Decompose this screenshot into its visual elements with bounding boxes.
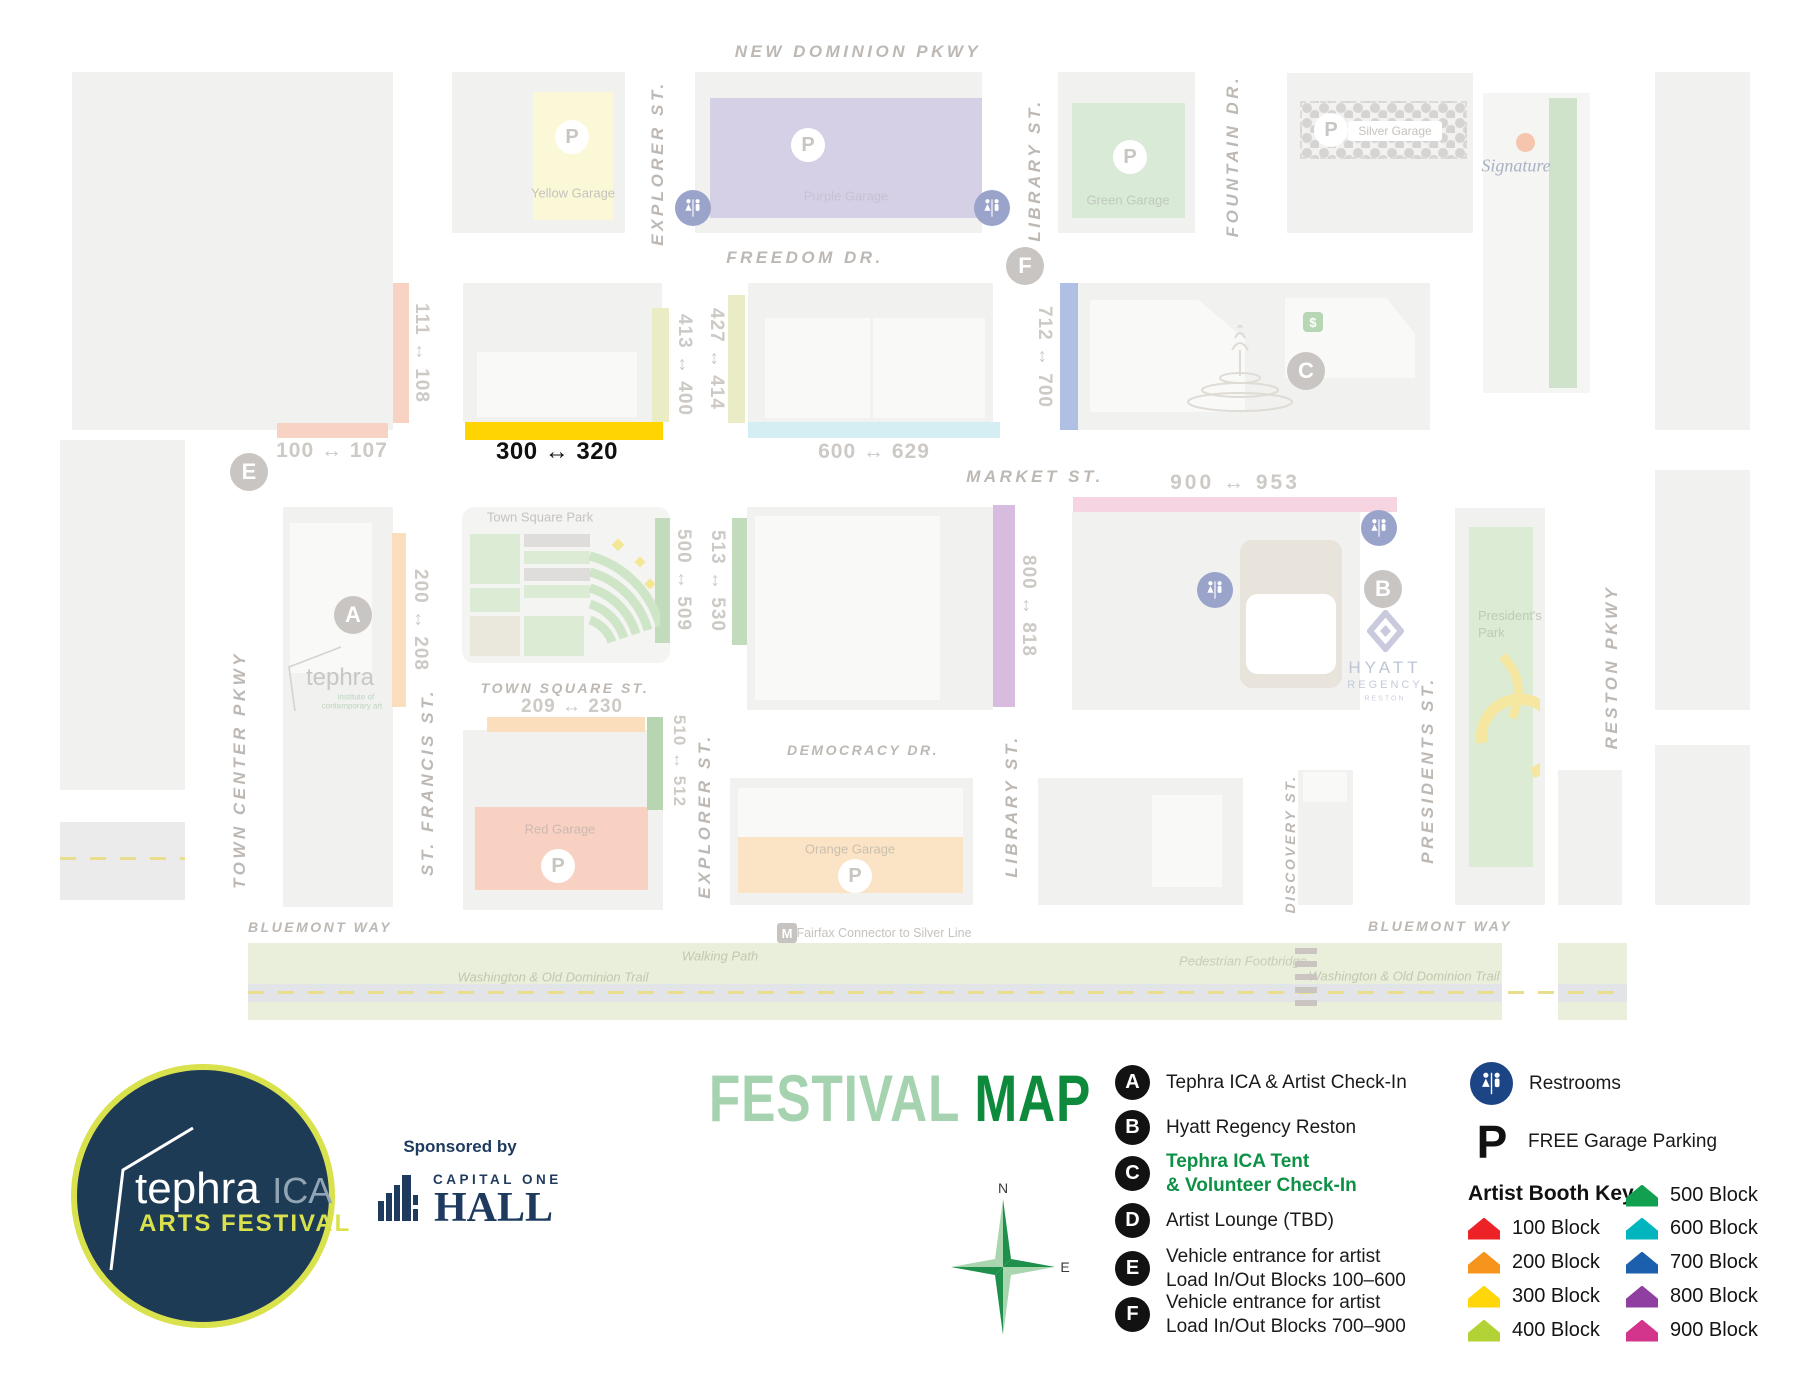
sponsored-by-label: Sponsored by bbox=[403, 1137, 516, 1157]
booth-key-600: 600 Block bbox=[1626, 1217, 1758, 1240]
city-block bbox=[72, 72, 393, 430]
metro-icon: M bbox=[777, 923, 797, 943]
booth-key-500-label: 500 Block bbox=[1670, 1184, 1758, 1207]
legend-marker-d: D bbox=[1115, 1203, 1150, 1238]
street-label-town-center-pkwy: TOWN CENTER PKWY bbox=[230, 651, 250, 889]
building bbox=[477, 352, 637, 417]
wod-trail-label-east: Washington & Old Dominion Trail bbox=[1309, 969, 1500, 984]
hyatt-diamond-icon bbox=[1367, 610, 1404, 652]
signature-label: Signature bbox=[1481, 156, 1550, 177]
building bbox=[1303, 772, 1347, 802]
parking-legend-icon: P bbox=[1472, 1115, 1512, 1169]
fountain-illustration bbox=[1185, 320, 1295, 415]
trail-road-dashes bbox=[248, 991, 1627, 994]
signature-logo-dot bbox=[1516, 133, 1535, 152]
street-label-market-st: MARKET ST. bbox=[966, 467, 1104, 487]
block-label-427-414: 427 ↔ 414 bbox=[705, 308, 727, 410]
booth-bar-800-818 bbox=[993, 505, 1015, 707]
booth-key-300-label: 300 Block bbox=[1512, 1285, 1600, 1308]
title-map: MAP bbox=[974, 1061, 1091, 1135]
yellow-garage-label: Yellow Garage bbox=[531, 186, 615, 201]
building bbox=[1152, 795, 1222, 887]
booth-bar-427-414 bbox=[728, 295, 745, 423]
signature-green-strip bbox=[1549, 98, 1577, 388]
legend-item-c: C Tephra ICA Tent & Volunteer Check-In bbox=[1115, 1150, 1357, 1198]
presidents-park-label-1: President's bbox=[1478, 608, 1542, 623]
logo-ica-text: ICA bbox=[272, 1170, 332, 1211]
legend-restrooms: Restrooms bbox=[1470, 1062, 1621, 1105]
booth-key-100-label: 100 Block bbox=[1512, 1217, 1600, 1240]
logo-tephra-text: tephra bbox=[135, 1164, 260, 1213]
booth-bar-513-530 bbox=[732, 518, 747, 645]
hyatt-reston-label: RESTON bbox=[1364, 696, 1405, 703]
booth-key-400: 400 Block bbox=[1468, 1319, 1600, 1342]
building bbox=[755, 516, 940, 700]
parking-icon-green-garage: P bbox=[1113, 140, 1147, 174]
tent-icon-800 bbox=[1626, 1286, 1658, 1308]
block-label-500-509: 500 ↔ 509 bbox=[672, 529, 694, 631]
block-label-600-629: 600 ↔ 629 bbox=[818, 440, 930, 464]
city-block bbox=[1655, 72, 1750, 430]
block-label-712-700: 712 ↔ 700 bbox=[1033, 306, 1055, 408]
pedestrian-footbridge-label: Pedestrian Footbridge bbox=[1179, 954, 1307, 969]
legend-item-f: F Vehicle entrance for artist Load In/Ou… bbox=[1115, 1291, 1406, 1339]
legend-item-b-text: Hyatt Regency Reston bbox=[1166, 1116, 1356, 1140]
city-block bbox=[1558, 770, 1622, 905]
block-label-200-208: 200 ↔ 208 bbox=[409, 569, 431, 671]
block-label-800-818: 800 ↔ 818 bbox=[1017, 555, 1039, 657]
street-label-library-st-north: LIBRARY ST. bbox=[1025, 98, 1045, 241]
restroom-icon bbox=[1197, 572, 1233, 608]
tent-icon-500 bbox=[1626, 1185, 1658, 1207]
booth-bar-510-512 bbox=[647, 717, 663, 810]
legend-marker-a: A bbox=[1115, 1065, 1150, 1100]
marker-f: F bbox=[1006, 247, 1044, 285]
street-label-discovery-st: DISCOVERY ST. bbox=[1282, 774, 1298, 913]
parking-icon-silver-garage: P bbox=[1314, 113, 1348, 147]
city-block bbox=[1655, 470, 1750, 710]
legend-marker-f: F bbox=[1115, 1297, 1150, 1332]
booth-key-800: 800 Block bbox=[1626, 1285, 1758, 1308]
building bbox=[765, 318, 870, 418]
purple-garage-label: Purple Garage bbox=[804, 189, 889, 204]
road-stub-west bbox=[60, 822, 185, 900]
marker-a: A bbox=[334, 596, 372, 634]
legend-marker-b: B bbox=[1115, 1110, 1150, 1145]
block-label-413-400: 413 ↔ 400 bbox=[673, 314, 695, 416]
legend-item-b: B Hyatt Regency Reston bbox=[1115, 1110, 1356, 1145]
legend-marker-c: C bbox=[1115, 1156, 1150, 1191]
yellow-garage bbox=[533, 92, 613, 220]
block-label-100-107: 100 ↔ 107 bbox=[276, 439, 388, 463]
city-block bbox=[60, 440, 185, 790]
marker-b: B bbox=[1364, 570, 1402, 608]
legend-item-c-text-1: Tephra ICA Tent bbox=[1166, 1150, 1357, 1174]
hyatt-regency-label: REGENCY bbox=[1347, 679, 1422, 691]
legend-item-e: E Vehicle entrance for artist Load In/Ou… bbox=[1115, 1245, 1406, 1293]
tent-icon-700 bbox=[1626, 1252, 1658, 1274]
booth-bar-712-700 bbox=[1060, 283, 1078, 430]
hyatt-courtyard bbox=[1246, 594, 1336, 674]
silver-garage-label: Silver Garage bbox=[1358, 124, 1431, 138]
booth-bar-100-107 bbox=[277, 423, 388, 438]
legend-item-e-text-2: Load In/Out Blocks 100–600 bbox=[1166, 1269, 1406, 1293]
legend-marker-e: E bbox=[1115, 1251, 1150, 1286]
booth-bar-209-230 bbox=[487, 717, 645, 732]
booth-key-300: 300 Block bbox=[1468, 1285, 1600, 1308]
presidents-park-sculpture bbox=[1468, 648, 1540, 793]
fairfax-connector-label: Fairfax Connector to Silver Line bbox=[796, 926, 971, 940]
street-label-new-dominion-pkwy: NEW DOMINION PKWY bbox=[735, 42, 982, 62]
booth-key-900: 900 Block bbox=[1626, 1319, 1758, 1342]
presidents-park-label-2: Park bbox=[1478, 625, 1505, 640]
tent-icon-300 bbox=[1468, 1286, 1500, 1308]
hall-label: HALL bbox=[434, 1184, 553, 1232]
festival-map-title: FESTIVAL MAP bbox=[655, 1060, 1145, 1136]
tent-icon-200 bbox=[1468, 1252, 1500, 1274]
booth-key-700-label: 700 Block bbox=[1670, 1251, 1758, 1274]
booth-key-600-label: 600 Block bbox=[1670, 1217, 1758, 1240]
building bbox=[873, 318, 985, 418]
legend-item-e-text-1: Vehicle entrance for artist bbox=[1166, 1245, 1406, 1269]
tephra-logo-lineart bbox=[285, 643, 347, 713]
dollar-icon: $ bbox=[1303, 312, 1323, 332]
restrooms-label: Restrooms bbox=[1529, 1072, 1621, 1096]
block-label-900-953: 900 ↔ 953 bbox=[1170, 471, 1300, 495]
street-label-freedom-dr: FREEDOM DR. bbox=[726, 248, 884, 268]
walking-path-label: Walking Path bbox=[682, 949, 758, 964]
road-dash-west bbox=[60, 857, 185, 860]
street-label-fountain-dr: FOUNTAIN DR. bbox=[1223, 75, 1243, 238]
parking-label: FREE Garage Parking bbox=[1528, 1130, 1717, 1154]
street-label-explorer-st-south: EXPLORER ST. bbox=[695, 733, 715, 898]
parking-icon-purple-garage: P bbox=[791, 128, 825, 162]
parking-icon-red-garage: P bbox=[541, 849, 575, 883]
street-label-st-francis-st: ST. FRANCIS ST. bbox=[418, 688, 438, 876]
booth-bar-600-629 bbox=[748, 422, 1000, 438]
booth-key-400-label: 400 Block bbox=[1512, 1319, 1600, 1342]
compass-rose: N E bbox=[933, 1182, 1073, 1352]
block-label-300-320-highlighted: 300 ↔ 320 bbox=[496, 438, 618, 466]
legend-item-f-text-1: Vehicle entrance for artist bbox=[1166, 1291, 1406, 1315]
capital-one-hall-logo-icon bbox=[378, 1173, 424, 1221]
legend-item-a: A Tephra ICA & Artist Check-In bbox=[1115, 1065, 1407, 1100]
booth-key-200-label: 200 Block bbox=[1512, 1251, 1600, 1274]
marker-c: C bbox=[1287, 352, 1325, 390]
block-label-111-108: 111 ↔ 108 bbox=[410, 303, 432, 403]
legend-item-f-text-2: Load In/Out Blocks 700–900 bbox=[1166, 1315, 1406, 1339]
building bbox=[738, 788, 963, 837]
tent-icon-600 bbox=[1626, 1218, 1658, 1240]
booth-key-title: Artist Booth Key bbox=[1468, 1182, 1634, 1206]
street-label-explorer-st-north: EXPLORER ST. bbox=[648, 80, 668, 245]
orange-garage-label: Orange Garage bbox=[805, 842, 895, 857]
parking-icon-orange-garage: P bbox=[838, 859, 872, 893]
street-label-reston-pkwy: RESTON PKWY bbox=[1602, 585, 1622, 750]
restrooms-legend-icon bbox=[1470, 1062, 1513, 1105]
tephra-arts-festival-logo: tephra ICA ARTS FESTIVAL bbox=[71, 1064, 335, 1328]
city-block bbox=[1655, 745, 1750, 905]
town-square-park-label: Town Square Park bbox=[487, 510, 593, 525]
legend-item-a-text: Tephra ICA & Artist Check-In bbox=[1166, 1071, 1407, 1095]
green-garage-label: Green Garage bbox=[1086, 193, 1169, 208]
booth-bar-413-400 bbox=[652, 308, 669, 422]
block-label-209-230: 209 ↔ 230 bbox=[521, 696, 623, 718]
restroom-icon bbox=[974, 190, 1010, 226]
marker-e: E bbox=[230, 453, 268, 491]
restroom-icon bbox=[675, 190, 711, 226]
booth-key-900-label: 900 Block bbox=[1670, 1319, 1758, 1342]
street-label-democracy-dr: DEMOCRACY DR. bbox=[787, 742, 939, 758]
logo-arts-festival-text: ARTS FESTIVAL bbox=[139, 1210, 351, 1238]
booth-key-200: 200 Block bbox=[1468, 1251, 1600, 1274]
legend-parking: P FREE Garage Parking bbox=[1472, 1115, 1717, 1169]
title-festival: FESTIVAL bbox=[709, 1061, 959, 1135]
town-square-park-illustration bbox=[468, 528, 660, 658]
tent-icon-100 bbox=[1468, 1218, 1500, 1240]
booth-key-100: 100 Block bbox=[1468, 1217, 1600, 1240]
compass-n-label: N bbox=[998, 1182, 1008, 1196]
legend-item-d-text: Artist Lounge (TBD) bbox=[1166, 1209, 1334, 1233]
trail-band-east bbox=[1558, 943, 1627, 1020]
booth-bar-200-208 bbox=[392, 533, 406, 707]
festival-map-page: NEW DOMINION PKWY FREEDOM DR. MARKET ST.… bbox=[0, 0, 1800, 1391]
booth-bar-900-953 bbox=[1073, 497, 1397, 512]
booth-key-700: 700 Block bbox=[1626, 1251, 1758, 1274]
parking-icon-yellow-garage: P bbox=[555, 120, 589, 154]
tent-icon-900 bbox=[1626, 1320, 1658, 1342]
compass-e-label: E bbox=[1060, 1259, 1069, 1275]
block-label-510-512: 510 ↔ 512 bbox=[669, 715, 689, 807]
street-label-presidents-st: PRESIDENTS ST. bbox=[1418, 676, 1438, 864]
legend-item-d: D Artist Lounge (TBD) bbox=[1115, 1203, 1334, 1238]
street-label-library-st-south: LIBRARY ST. bbox=[1002, 734, 1022, 877]
red-garage-label: Red Garage bbox=[525, 822, 596, 837]
booth-key-800-label: 800 Block bbox=[1670, 1285, 1758, 1308]
tent-icon-400 bbox=[1468, 1320, 1500, 1342]
booth-bar-111-108 bbox=[393, 283, 409, 423]
street-label-town-square-st: TOWN SQUARE ST. bbox=[481, 680, 649, 696]
booth-key-500: 500 Block bbox=[1626, 1184, 1758, 1207]
block-label-513-530: 513 ↔ 530 bbox=[706, 530, 728, 632]
legend-item-c-text-2: & Volunteer Check-In bbox=[1166, 1174, 1357, 1198]
street-label-bluemont-way-east: BLUEMONT WAY bbox=[1368, 918, 1512, 934]
restroom-icon bbox=[1361, 510, 1397, 546]
booth-bar-300-320-highlighted bbox=[465, 422, 663, 440]
hyatt-label: HYATT bbox=[1348, 658, 1421, 678]
street-label-bluemont-way-west: BLUEMONT WAY bbox=[248, 919, 392, 935]
wod-trail-label-west: Washington & Old Dominion Trail bbox=[458, 970, 649, 985]
